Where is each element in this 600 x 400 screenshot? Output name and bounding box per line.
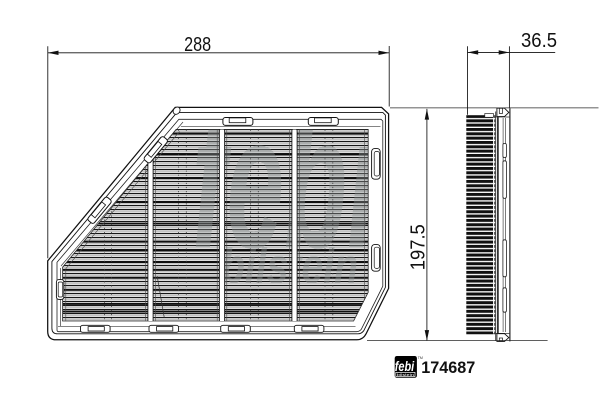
svg-text:288: 288 bbox=[184, 33, 211, 56]
svg-text:36.5: 36.5 bbox=[521, 29, 557, 52]
svg-text:174687: 174687 bbox=[421, 359, 475, 377]
svg-text:bilstein: bilstein bbox=[397, 373, 414, 377]
svg-text:197.5: 197.5 bbox=[407, 224, 430, 270]
